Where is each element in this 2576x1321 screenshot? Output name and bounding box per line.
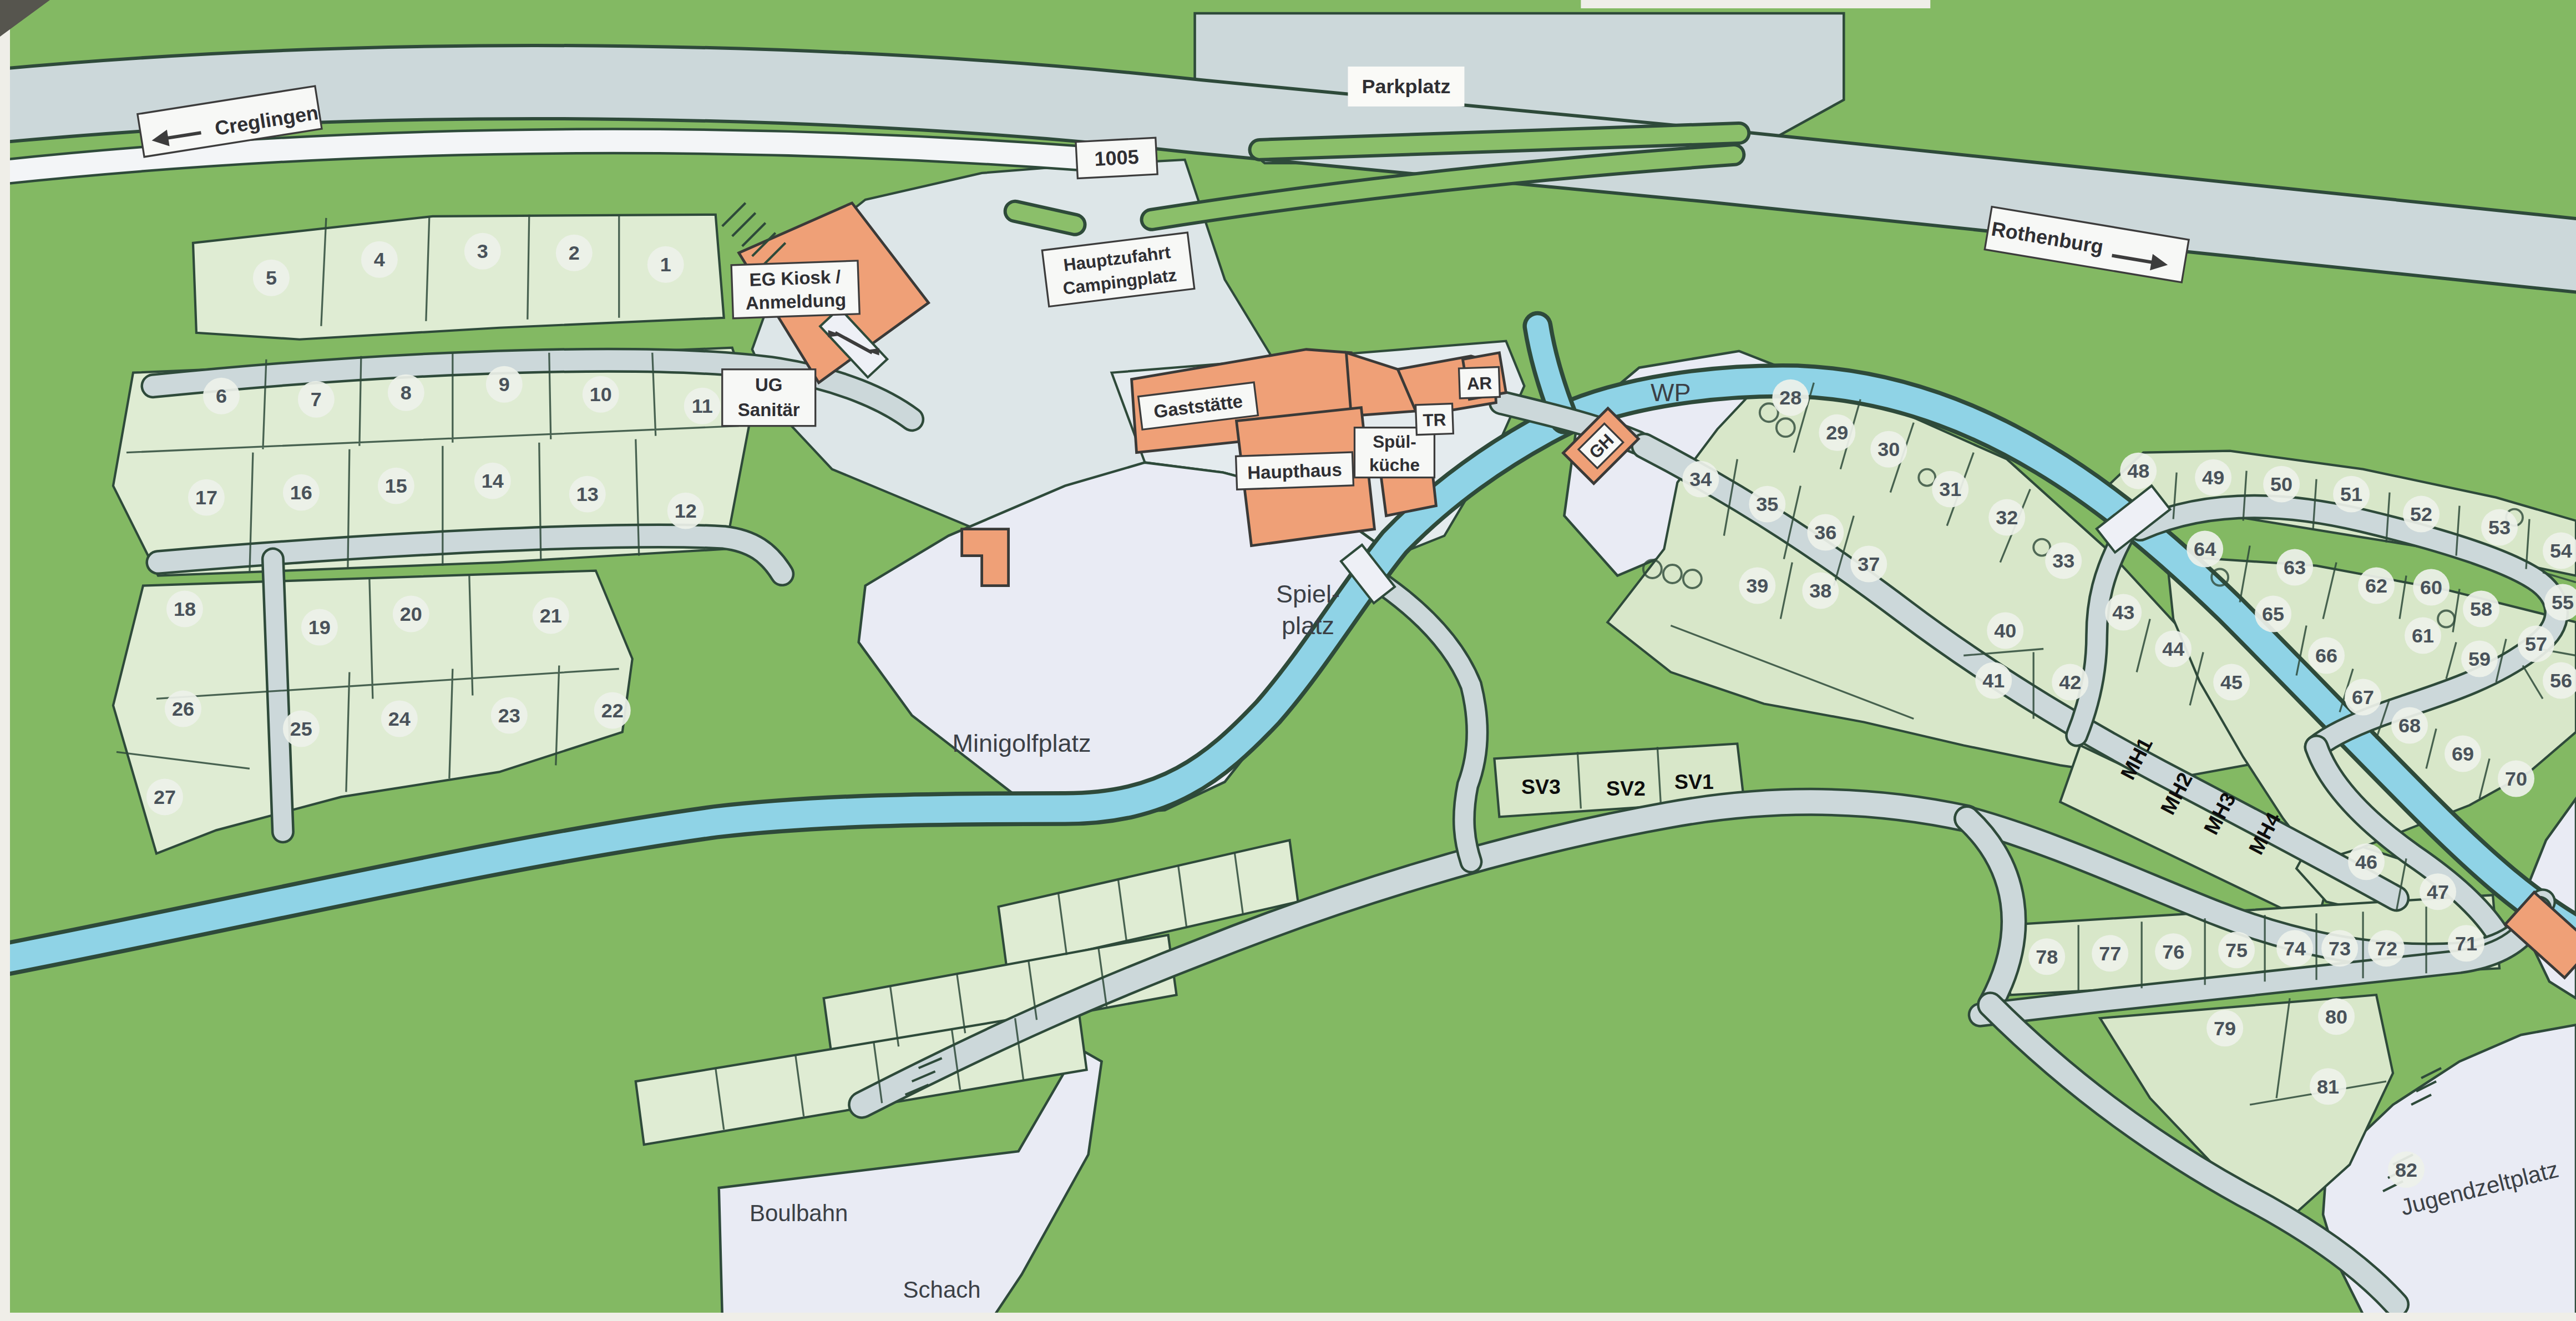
pitch-number: 9 [499,373,510,396]
pitch-number: 37 [1858,553,1880,575]
pitch-marker-73: 73 [2321,930,2358,966]
pitch-marker-25: 25 [283,710,320,747]
pitch-number: 69 [2452,742,2474,765]
pitch-marker-39: 39 [1739,568,1775,604]
pitch-number: 79 [2214,1017,2236,1040]
pitch-number: 4 [374,248,385,271]
pitch-marker-43: 43 [2105,594,2142,631]
pitch-number: 66 [2315,644,2337,667]
pitch-marker-23: 23 [491,697,528,733]
pitch-label-sv2: SV2 [1606,777,1646,800]
sign-route-1005: 1005 [1076,138,1157,178]
pitch-marker-29: 29 [1819,414,1855,451]
pitch-marker-16: 16 [283,474,320,511]
pitch-number: 48 [2127,459,2149,482]
pitch-marker-10: 10 [583,376,619,413]
pitch-marker-5: 5 [253,260,290,296]
pitch-number: 20 [400,603,422,625]
pitch-number: 61 [2412,624,2434,647]
pitch-marker-12: 12 [667,493,704,529]
pitch-marker-20: 20 [393,596,429,632]
pitch-number: 5 [266,266,277,289]
pitch-marker-57: 57 [2518,626,2554,662]
pitch-number: 16 [290,481,312,504]
pitch-marker-74: 74 [2276,930,2313,966]
pitch-number: 52 [2410,503,2432,525]
pitch-marker-47: 47 [2420,873,2456,910]
pitch-marker-1: 1 [647,246,684,283]
label-haupthaus: Haupthaus [1236,452,1354,489]
pitch-marker-28: 28 [1772,379,1809,416]
pitch-number: 41 [1982,669,2005,692]
pitch-marker-26: 26 [165,690,201,727]
pitch-marker-48: 48 [2120,453,2157,489]
pitch-number: 60 [2420,576,2442,599]
label-kiosk: EG Kiosk / Anmeldung [731,261,859,318]
pitch-number: 57 [2525,632,2547,655]
pitch-number: 68 [2398,714,2421,737]
pitch-number: 25 [290,717,312,740]
pitch-marker-63: 63 [2276,549,2313,586]
pitch-marker-8: 8 [388,374,424,411]
pitch-number: 36 [1814,521,1836,544]
pitch-marker-4: 4 [361,241,398,278]
pitch-marker-44: 44 [2155,631,2192,667]
pitch-number: 43 [2112,601,2134,624]
pitch-number: 13 [576,483,599,505]
pitch-number: 62 [2365,574,2387,597]
pitch-marker-70: 70 [2498,760,2534,797]
pitch-number: 42 [2059,671,2081,694]
pitch-marker-34: 34 [1682,461,1719,498]
pitch-marker-3: 3 [464,233,501,270]
label-haupthaus-text: Haupthaus [1247,459,1343,483]
pitch-number: 28 [1779,386,1801,409]
sign-frame-left [0,0,10,1321]
pitch-number: 73 [2329,937,2351,960]
pitch-number: 22 [601,699,624,722]
pitch-number: 74 [2284,937,2306,960]
pitch-marker-24: 24 [381,700,418,737]
pitch-marker-36: 36 [1807,514,1844,551]
pitch-number: 23 [498,704,520,727]
pitch-number: 80 [2325,1005,2347,1028]
label-minigolfplatz: Minigolfplatz [953,729,1091,757]
label-tr-text: TR [1423,410,1446,430]
pitch-number: 6 [216,384,227,407]
sign-frame-bottom [0,1313,2576,1321]
label-wp: WP [1651,378,1691,407]
pitch-marker-58: 58 [2463,591,2499,627]
pitch-marker-22: 22 [594,692,631,728]
pitch-number: 11 [692,394,713,417]
pitch-number: 71 [2455,932,2477,955]
pitch-number: 10 [590,383,612,406]
pitch-number: 45 [2220,671,2243,694]
pitch-marker-19: 19 [301,609,338,646]
pitch-number: 38 [1809,579,1831,602]
pitch-number: 39 [1746,574,1768,597]
pitch-number: 44 [2162,637,2184,660]
pitch-marker-53: 53 [2481,509,2518,546]
pitch-marker-67: 67 [2345,679,2381,715]
pitch-number: 8 [401,381,412,404]
pitch-marker-14: 14 [474,463,511,499]
pitch-number: 81 [2317,1075,2339,1098]
pitch-marker-40: 40 [1987,613,2023,649]
pitch-marker-9: 9 [486,366,523,403]
pitch-number: 51 [2340,483,2362,505]
pitch-number: 49 [2202,466,2224,489]
pitch-number: 82 [2395,1158,2417,1181]
pitch-number: 75 [2225,939,2248,961]
campground-site-map: Creglingen Rothenburg 1005 Hauptzufahrt … [0,0,2576,1321]
pitch-number: 1 [660,253,671,276]
pitch-number: 15 [385,474,407,497]
pitch-number: 54 [2550,539,2572,562]
pitch-marker-17: 17 [188,479,225,516]
pitch-number: 76 [2162,940,2184,963]
pitch-number: 63 [2284,556,2306,579]
pitch-marker-68: 68 [2391,707,2428,743]
label-spielplatz-line2: platz [1282,611,1334,640]
pitch-number: 14 [482,469,504,492]
label-boulbahn: Boulbahn [750,1200,848,1226]
pitch-marker-75: 75 [2218,932,2255,968]
label-tr: TR [1416,404,1454,435]
pitch-label-sv3: SV3 [1521,775,1561,798]
pitch-number: 56 [2550,669,2572,692]
pitch-marker-13: 13 [569,476,606,513]
pitch-number: 59 [2468,647,2491,670]
label-ug-line1: UG [755,374,782,395]
pitch-marker-82: 82 [2388,1151,2425,1188]
pitch-number: 32 [1996,506,2018,529]
pitch-number: 27 [154,786,176,808]
pitch-marker-62: 62 [2358,568,2395,604]
label-ug-line2: Sanitär [738,399,800,420]
pitch-marker-81: 81 [2310,1068,2346,1105]
pitch-number: 67 [2352,686,2374,708]
pitch-marker-30: 30 [1870,431,1907,468]
pitch-number: 29 [1826,421,1848,444]
pitch-marker-21: 21 [533,598,569,634]
pitch-number: 19 [308,616,331,639]
pitch-number: 31 [1939,478,1961,500]
pitch-marker-76: 76 [2155,933,2192,970]
pitch-marker-46: 46 [2348,843,2385,880]
pitch-number: 7 [311,388,322,411]
pitch-marker-66: 66 [2308,637,2345,674]
label-kiosk-line1: EG Kiosk / [749,266,841,290]
pitch-marker-72: 72 [2368,930,2405,966]
pitch-number: 77 [2099,942,2121,965]
pitch-marker-35: 35 [1749,486,1785,523]
pitch-number: 21 [540,604,562,627]
pitch-marker-65: 65 [2255,596,2291,632]
pitch-marker-15: 15 [378,468,414,504]
pitch-number: 18 [174,598,196,620]
pitch-number: 50 [2270,473,2292,495]
pitch-marker-69: 69 [2445,735,2481,772]
pitch-marker-6: 6 [203,378,240,414]
pitch-marker-38: 38 [1802,573,1839,609]
pitch-number: 26 [172,697,194,720]
label-parkplatz-text: Parkplatz [1362,75,1450,98]
pitch-number: 17 [195,486,217,509]
pitch-marker-41: 41 [1975,662,2012,699]
pitch-marker-78: 78 [2028,938,2065,975]
pitch-marker-42: 42 [2052,664,2088,700]
label-ar-text: AR [1466,373,1492,394]
pitch-marker-64: 64 [2187,531,2223,568]
pitch-number: 70 [2505,767,2527,790]
label-ug-sanitaer: UG Sanitär [722,370,816,426]
pitch-number: 64 [2194,538,2216,560]
pitch-marker-27: 27 [146,778,183,815]
pitch-number: 30 [1877,438,1900,460]
pitch-marker-59: 59 [2461,641,2498,677]
pitch-marker-60: 60 [2413,569,2450,606]
pitch-number: 72 [2375,937,2397,960]
label-spielplatz-line1: Spiel- [1276,580,1340,608]
pitch-marker-11: 11 [684,388,721,424]
pitch-marker-2: 2 [556,235,593,271]
pitch-number: 47 [2427,880,2449,903]
pitch-marker-37: 37 [1850,546,1887,583]
pitch-number: 24 [388,707,411,730]
label-spuel-line1: Spül- [1373,432,1416,452]
pitch-marker-79: 79 [2206,1010,2243,1046]
pitch-marker-71: 71 [2448,925,2484,961]
sign-frame-top [1581,0,1930,8]
pitch-marker-52: 52 [2403,496,2440,533]
pitch-number: 65 [2262,603,2284,625]
pitch-marker-80: 80 [2318,998,2355,1035]
pitch-marker-77: 77 [2092,935,2128,971]
pitch-marker-31: 31 [1932,471,1968,508]
pitch-number: 3 [477,240,488,262]
pitch-number: 2 [569,241,580,264]
pitch-number: 12 [675,499,697,522]
pitch-number: 53 [2488,516,2511,539]
pitch-marker-33: 33 [2045,543,2082,579]
pitch-number: 40 [1994,619,2016,642]
pitch-marker-61: 61 [2405,618,2441,654]
sign-route-number: 1005 [1094,145,1140,170]
pitch-number: 55 [2552,591,2574,614]
pitch-number: 33 [2052,549,2074,572]
pitch-label-sv1: SV1 [1674,770,1714,793]
pitch-marker-18: 18 [166,591,203,627]
pitch-number: 58 [2470,598,2492,620]
pitch-marker-45: 45 [2213,664,2250,700]
pitch-marker-51: 51 [2333,476,2370,513]
label-spuel-line2: küche [1369,455,1420,475]
pitch-marker-32: 32 [1988,499,2025,536]
label-ar: AR [1459,367,1500,398]
camp-road-vertical-left [273,559,283,832]
label-parkplatz: Parkplatz [1348,67,1464,107]
pitch-number: 46 [2355,851,2377,873]
pitch-number: 34 [1689,468,1712,490]
pitch-marker-49: 49 [2195,459,2231,496]
pitch-marker-7: 7 [298,381,335,418]
pitch-number: 35 [1756,493,1778,515]
pitch-marker-50: 50 [2263,466,2300,503]
pitch-number: 78 [2036,945,2058,968]
label-kiosk-line2: Anmeldung [745,290,847,313]
label-schach: Schach [903,1277,981,1303]
